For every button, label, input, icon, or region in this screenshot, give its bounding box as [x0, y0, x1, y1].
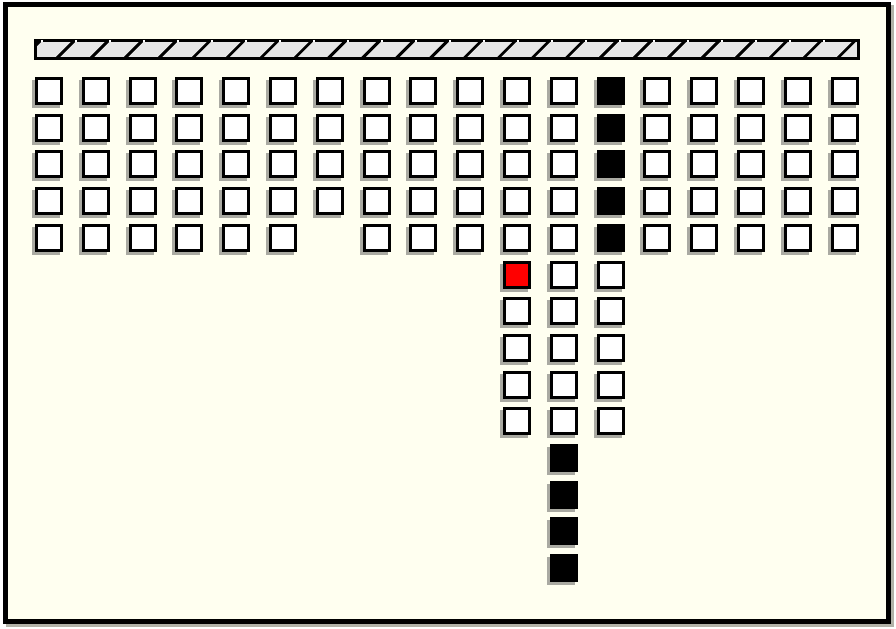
- white-tile[interactable]: [35, 77, 63, 105]
- white-tile[interactable]: [456, 77, 484, 105]
- white-tile[interactable]: [737, 224, 765, 252]
- white-tile[interactable]: [503, 114, 531, 142]
- white-tile[interactable]: [269, 224, 297, 252]
- white-tile[interactable]: [784, 150, 812, 178]
- white-tile[interactable]: [643, 224, 671, 252]
- white-tile[interactable]: [363, 114, 391, 142]
- white-tile[interactable]: [643, 77, 671, 105]
- white-tile[interactable]: [737, 114, 765, 142]
- white-tile[interactable]: [129, 150, 157, 178]
- black-tile[interactable]: [550, 481, 578, 509]
- white-tile[interactable]: [316, 150, 344, 178]
- white-tile[interactable]: [643, 187, 671, 215]
- white-tile[interactable]: [409, 224, 437, 252]
- white-tile[interactable]: [175, 187, 203, 215]
- white-tile[interactable]: [82, 150, 110, 178]
- white-tile[interactable]: [831, 187, 859, 215]
- white-tile[interactable]: [222, 150, 250, 178]
- white-tile[interactable]: [363, 187, 391, 215]
- white-tile[interactable]: [175, 224, 203, 252]
- white-tile[interactable]: [129, 77, 157, 105]
- white-tile[interactable]: [690, 114, 718, 142]
- white-tile[interactable]: [831, 77, 859, 105]
- white-tile[interactable]: [831, 224, 859, 252]
- white-tile[interactable]: [690, 187, 718, 215]
- white-tile[interactable]: [737, 187, 765, 215]
- white-tile[interactable]: [690, 77, 718, 105]
- white-tile[interactable]: [550, 224, 578, 252]
- black-tile[interactable]: [550, 554, 578, 582]
- white-tile[interactable]: [784, 187, 812, 215]
- white-tile[interactable]: [35, 114, 63, 142]
- white-tile[interactable]: [456, 187, 484, 215]
- white-tile[interactable]: [503, 297, 531, 325]
- white-tile[interactable]: [503, 187, 531, 215]
- white-tile[interactable]: [550, 150, 578, 178]
- white-tile[interactable]: [550, 407, 578, 435]
- white-tile[interactable]: [737, 150, 765, 178]
- white-tile[interactable]: [175, 77, 203, 105]
- white-tile[interactable]: [503, 371, 531, 399]
- black-tile[interactable]: [597, 187, 625, 215]
- white-tile[interactable]: [503, 150, 531, 178]
- white-tile[interactable]: [597, 407, 625, 435]
- white-tile[interactable]: [222, 114, 250, 142]
- black-tile[interactable]: [597, 77, 625, 105]
- white-tile[interactable]: [129, 114, 157, 142]
- white-tile[interactable]: [269, 77, 297, 105]
- black-tile[interactable]: [597, 150, 625, 178]
- white-tile[interactable]: [456, 150, 484, 178]
- white-tile[interactable]: [409, 77, 437, 105]
- white-tile[interactable]: [316, 187, 344, 215]
- white-tile[interactable]: [82, 77, 110, 105]
- white-tile[interactable]: [316, 114, 344, 142]
- white-tile[interactable]: [456, 224, 484, 252]
- white-tile[interactable]: [690, 150, 718, 178]
- white-tile[interactable]: [503, 77, 531, 105]
- black-tile[interactable]: [550, 517, 578, 545]
- white-tile[interactable]: [222, 224, 250, 252]
- white-tile[interactable]: [550, 77, 578, 105]
- white-tile[interactable]: [363, 150, 391, 178]
- red-tile[interactable]: [503, 261, 531, 289]
- white-tile[interactable]: [175, 150, 203, 178]
- white-tile[interactable]: [35, 187, 63, 215]
- white-tile[interactable]: [550, 334, 578, 362]
- white-tile[interactable]: [363, 77, 391, 105]
- white-tile[interactable]: [82, 114, 110, 142]
- black-tile[interactable]: [597, 224, 625, 252]
- white-tile[interactable]: [269, 187, 297, 215]
- white-tile[interactable]: [597, 261, 625, 289]
- white-tile[interactable]: [409, 150, 437, 178]
- white-tile[interactable]: [550, 371, 578, 399]
- white-tile[interactable]: [550, 261, 578, 289]
- white-tile[interactable]: [597, 334, 625, 362]
- black-tile[interactable]: [597, 114, 625, 142]
- white-tile[interactable]: [35, 224, 63, 252]
- white-tile[interactable]: [409, 114, 437, 142]
- white-tile[interactable]: [784, 77, 812, 105]
- white-tile[interactable]: [550, 297, 578, 325]
- white-tile[interactable]: [269, 114, 297, 142]
- white-tile[interactable]: [129, 187, 157, 215]
- white-tile[interactable]: [82, 187, 110, 215]
- white-tile[interactable]: [129, 224, 157, 252]
- white-tile[interactable]: [222, 187, 250, 215]
- white-tile[interactable]: [597, 297, 625, 325]
- white-tile[interactable]: [503, 224, 531, 252]
- white-tile[interactable]: [316, 77, 344, 105]
- white-tile[interactable]: [269, 150, 297, 178]
- white-tile[interactable]: [784, 114, 812, 142]
- white-tile[interactable]: [222, 77, 250, 105]
- white-tile[interactable]: [503, 334, 531, 362]
- white-tile[interactable]: [597, 371, 625, 399]
- white-tile[interactable]: [643, 150, 671, 178]
- white-tile[interactable]: [784, 224, 812, 252]
- page: { "window": { "page_bg": "#ffffff", "bg"…: [0, 0, 896, 629]
- white-tile[interactable]: [643, 114, 671, 142]
- white-tile[interactable]: [831, 114, 859, 142]
- white-tile[interactable]: [409, 187, 437, 215]
- white-tile[interactable]: [82, 224, 110, 252]
- white-tile[interactable]: [690, 224, 718, 252]
- white-tile[interactable]: [831, 150, 859, 178]
- white-tile[interactable]: [35, 150, 63, 178]
- black-tile[interactable]: [550, 444, 578, 472]
- white-tile[interactable]: [363, 224, 391, 252]
- game-board: [0, 0, 896, 629]
- white-tile[interactable]: [737, 77, 765, 105]
- white-tile[interactable]: [550, 187, 578, 215]
- white-tile[interactable]: [503, 407, 531, 435]
- white-tile[interactable]: [456, 114, 484, 142]
- white-tile[interactable]: [550, 114, 578, 142]
- white-tile[interactable]: [175, 114, 203, 142]
